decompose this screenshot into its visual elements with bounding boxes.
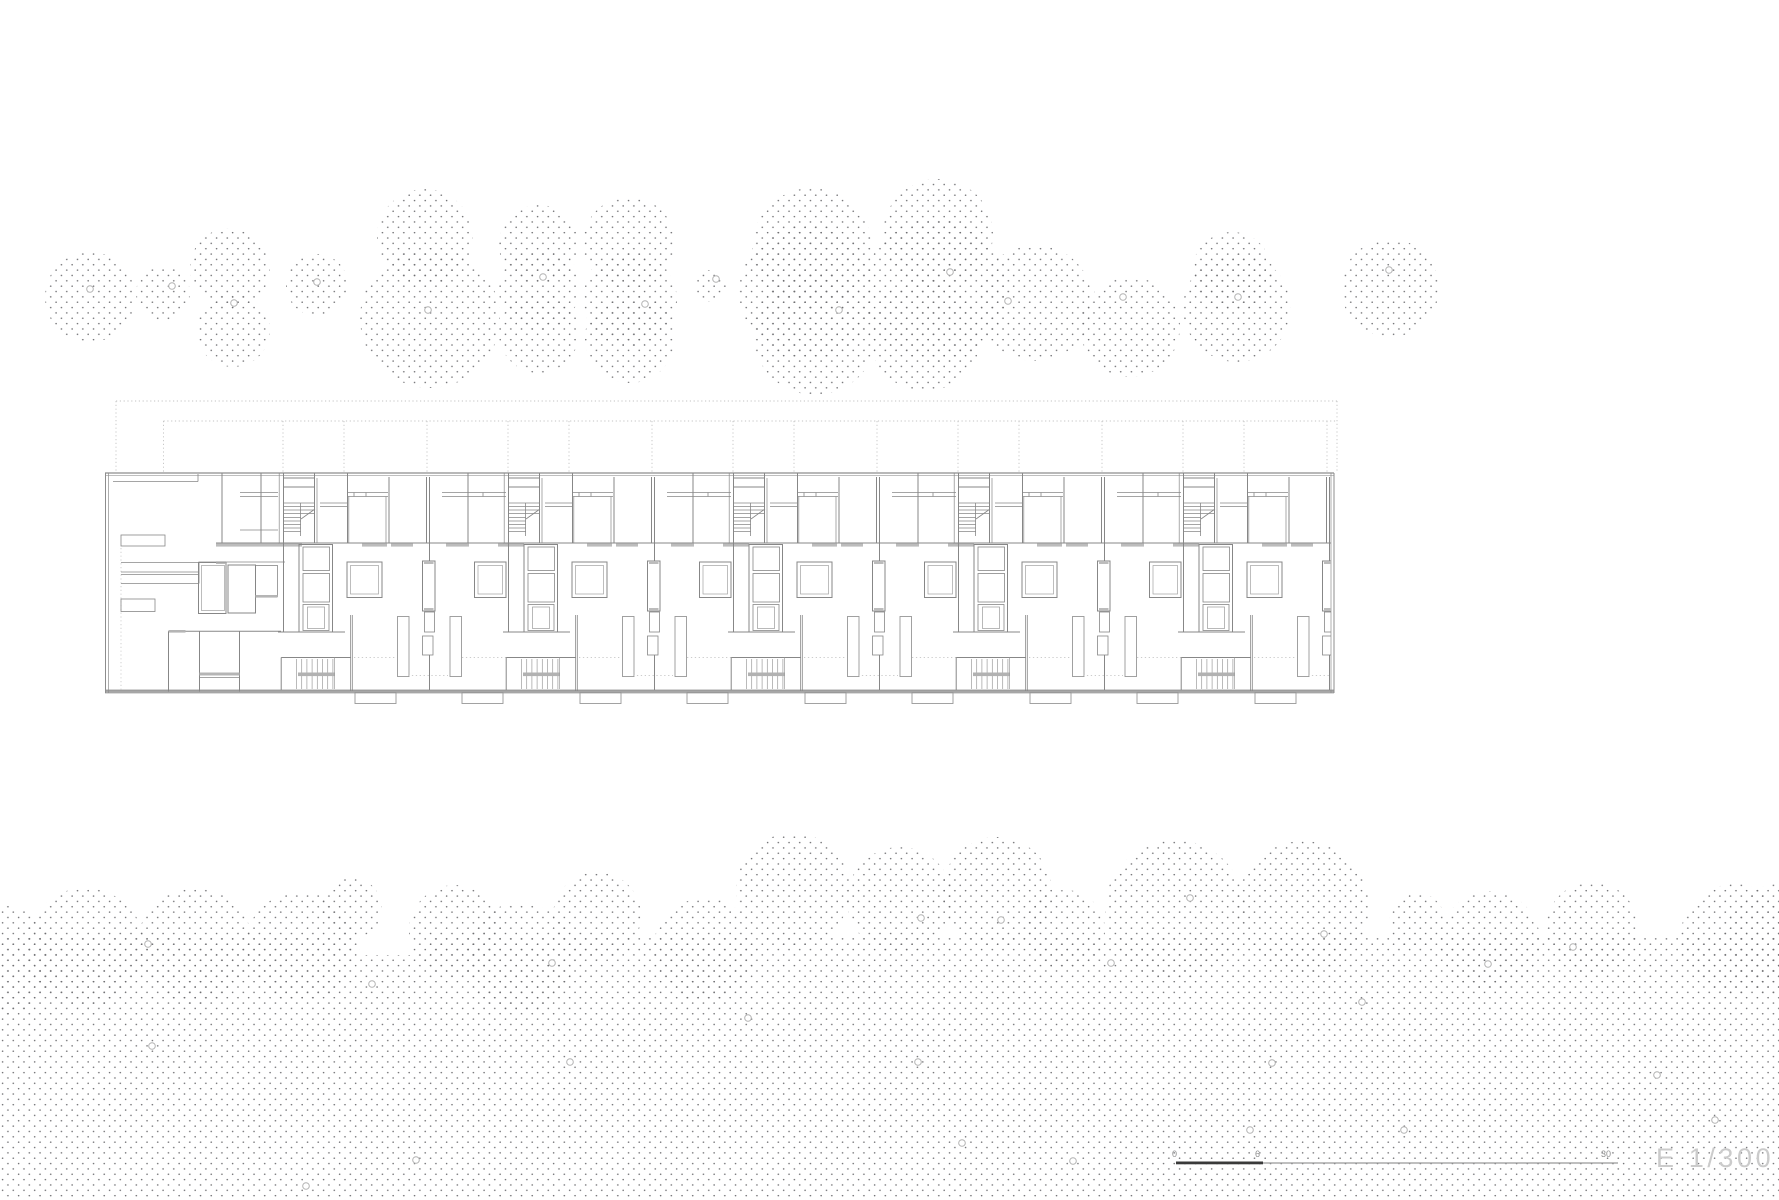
svg-text:0: 0 [1172, 1149, 1177, 1159]
svg-text:E 1/300: E 1/300 [1656, 1143, 1774, 1173]
svg-text:30: 30 [1601, 1149, 1611, 1159]
svg-text:6: 6 [1255, 1149, 1260, 1159]
